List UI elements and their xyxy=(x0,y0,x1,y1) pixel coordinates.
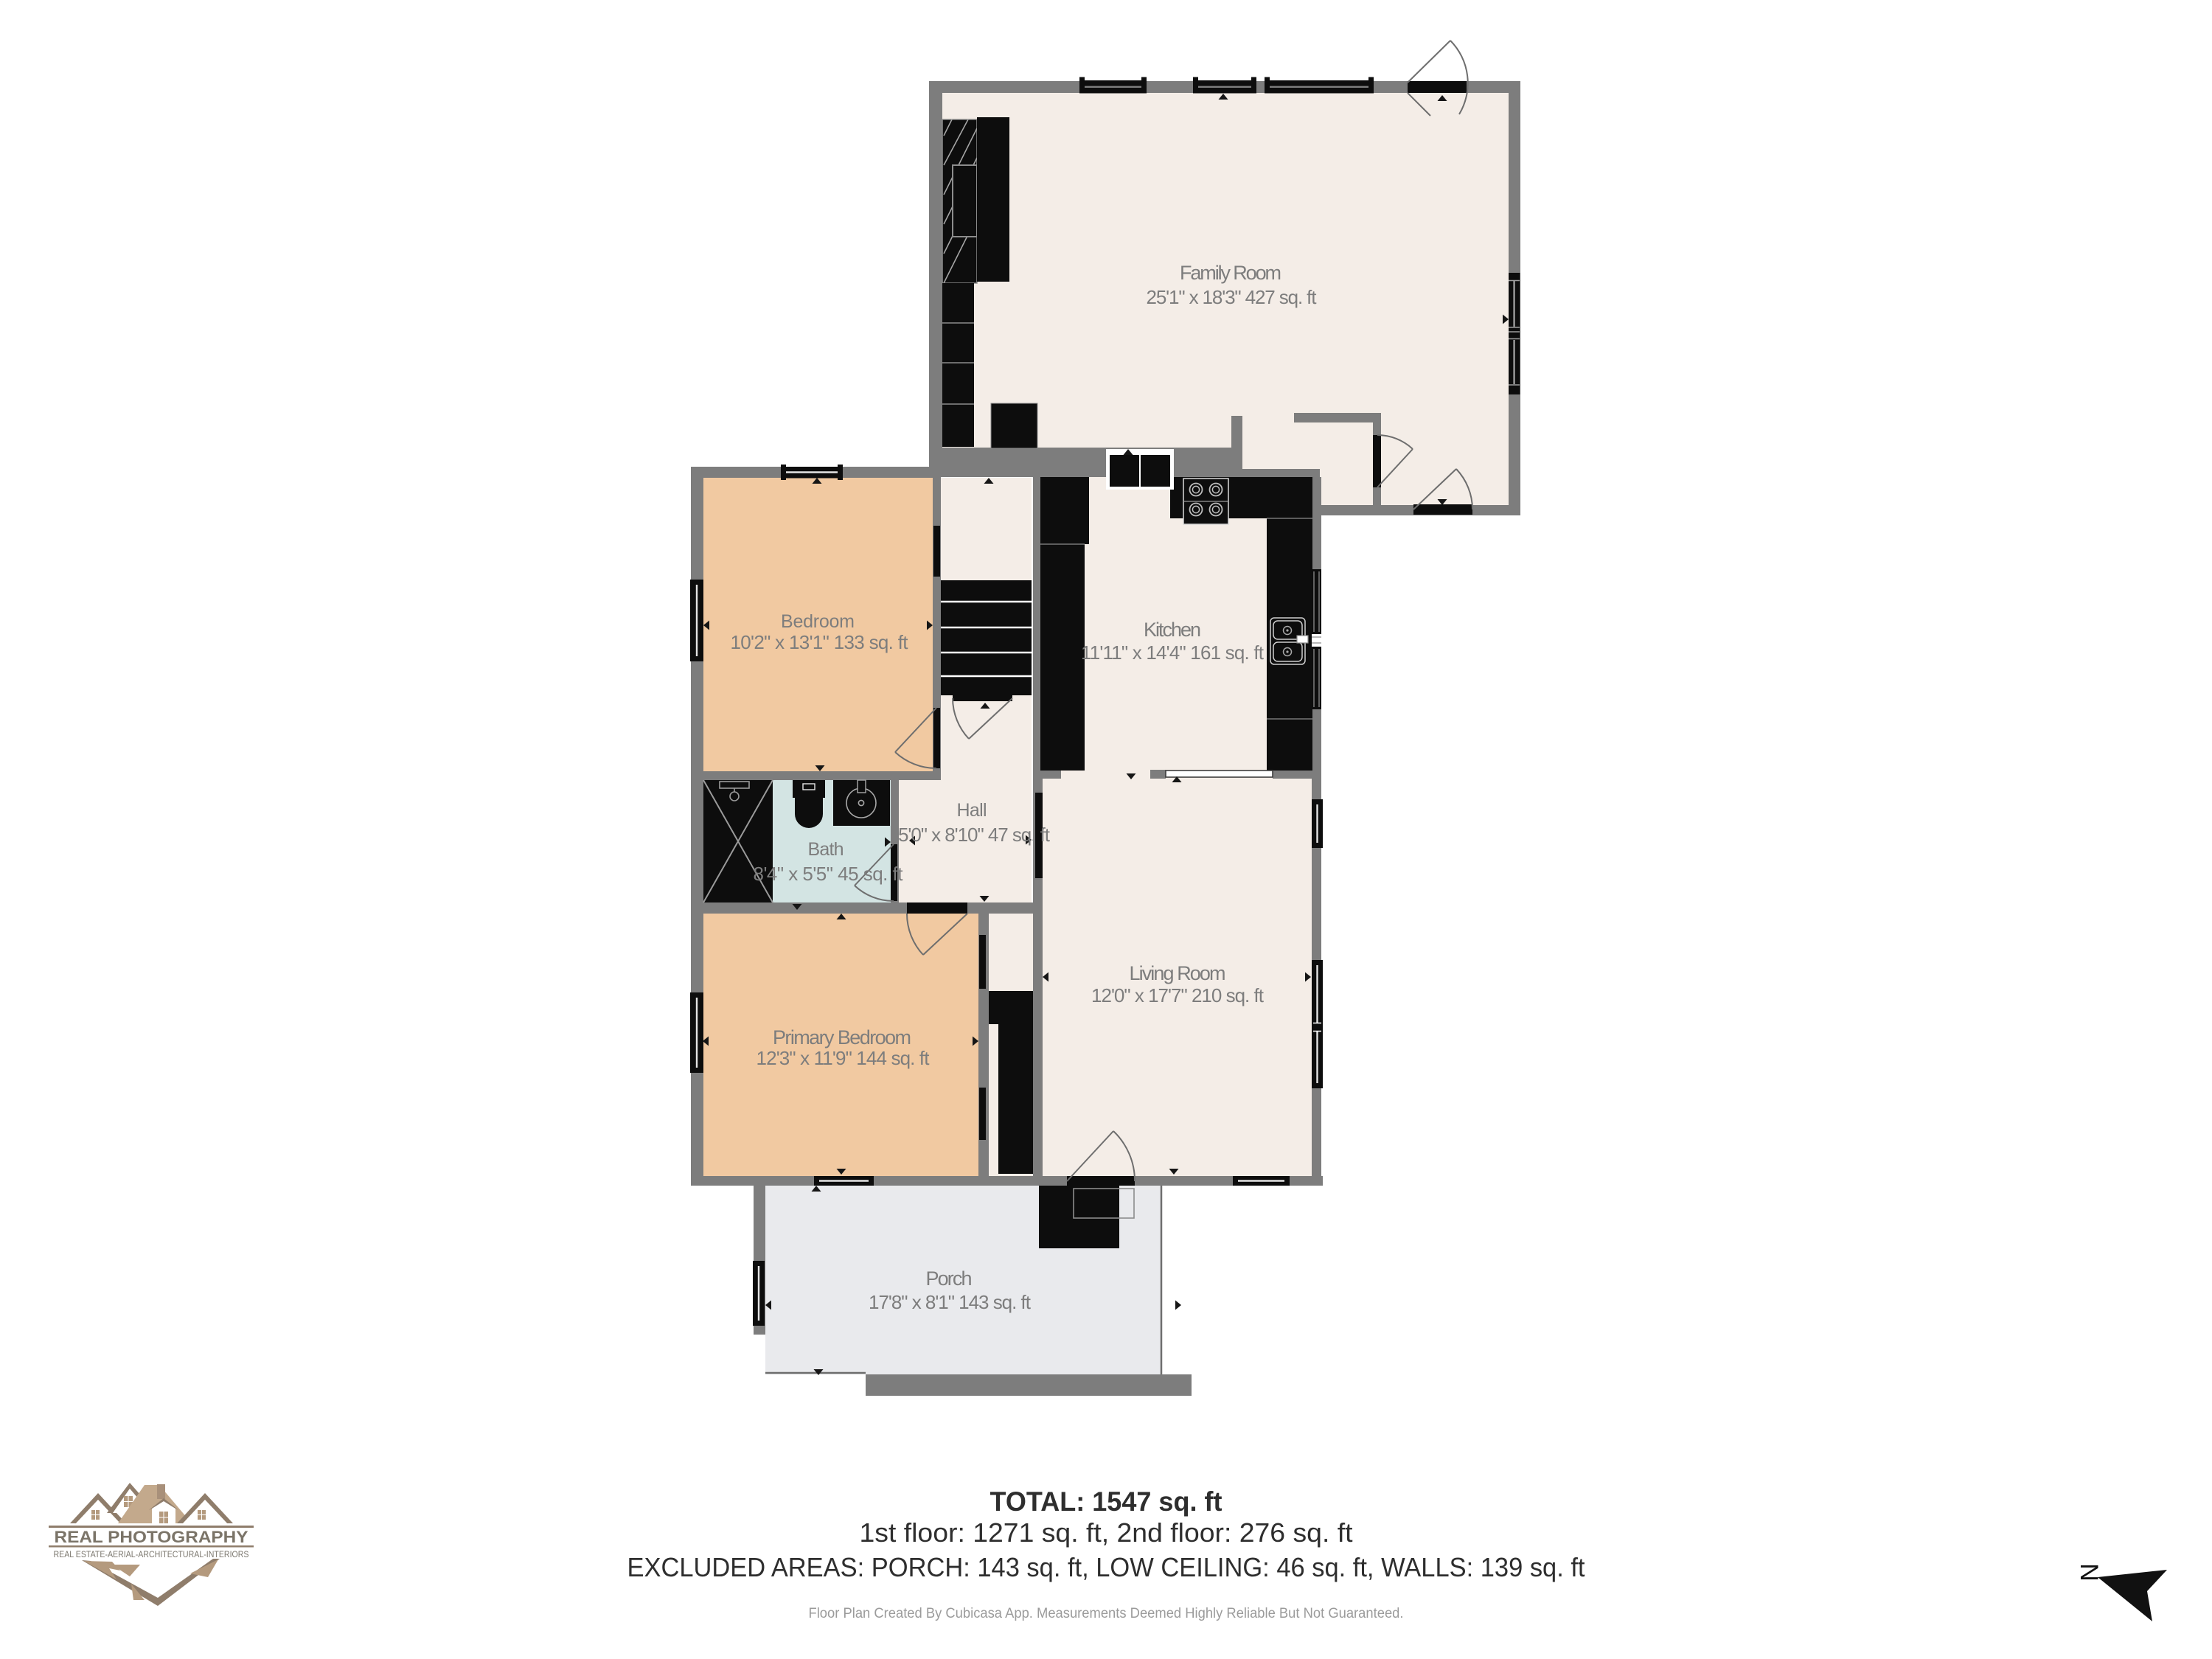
svg-text:Porch: Porch xyxy=(926,1267,973,1290)
svg-text:12'3" x 11'9" 144 sq. ft: 12'3" x 11'9" 144 sq. ft xyxy=(757,1047,931,1069)
svg-text:11'11" x 14'4" 161 sq. ft: 11'11" x 14'4" 161 sq. ft xyxy=(1081,641,1265,664)
svg-text:Kitchen: Kitchen xyxy=(1144,619,1201,641)
svg-text:8'4" x 5'5" 45 sq. ft: 8'4" x 5'5" 45 sq. ft xyxy=(754,863,904,885)
svg-text:Family Room: Family Room xyxy=(1180,262,1281,284)
svg-text:17'8" x 8'1" 143 sq. ft: 17'8" x 8'1" 143 sq. ft xyxy=(869,1291,1032,1313)
svg-text:Hall: Hall xyxy=(957,800,987,821)
svg-text:Bedroom: Bedroom xyxy=(781,611,855,632)
svg-text:Primary Bedroom: Primary Bedroom xyxy=(773,1026,911,1048)
svg-text:N: N xyxy=(2075,1563,2103,1582)
svg-text:TOTAL: 1547 sq. ft: TOTAL: 1547 sq. ft xyxy=(990,1486,1222,1517)
svg-text:REAL PHOTOGRAPHY: REAL PHOTOGRAPHY xyxy=(55,1528,248,1546)
svg-text:Bath: Bath xyxy=(808,839,844,860)
svg-text:EXCLUDED AREAS: PORCH: 143 sq.: EXCLUDED AREAS: PORCH: 143 sq. ft, LOW C… xyxy=(627,1552,1585,1582)
svg-text:Living Room: Living Room xyxy=(1130,962,1226,984)
svg-text:10'2" x 13'1" 133 sq. ft: 10'2" x 13'1" 133 sq. ft xyxy=(731,631,909,653)
svg-text:12'0" x 17'7" 210 sq. ft: 12'0" x 17'7" 210 sq. ft xyxy=(1091,984,1265,1006)
svg-text:Floor Plan Created By Cubicasa: Floor Plan Created By Cubicasa App. Meas… xyxy=(809,1606,1404,1621)
svg-text:5'0" x 8'10" 47 sq. ft: 5'0" x 8'10" 47 sq. ft xyxy=(898,824,1051,846)
svg-text:REAL ESTATE-AERIAL-ARCHITECTUR: REAL ESTATE-AERIAL-ARCHITECTURAL-INTERIO… xyxy=(54,1551,249,1559)
svg-text:1st floor: 1271 sq. ft, 2nd fl: 1st floor: 1271 sq. ft, 2nd floor: 276 s… xyxy=(860,1517,1353,1548)
svg-text:25'1" x 18'3" 427 sq. ft: 25'1" x 18'3" 427 sq. ft xyxy=(1147,286,1318,308)
